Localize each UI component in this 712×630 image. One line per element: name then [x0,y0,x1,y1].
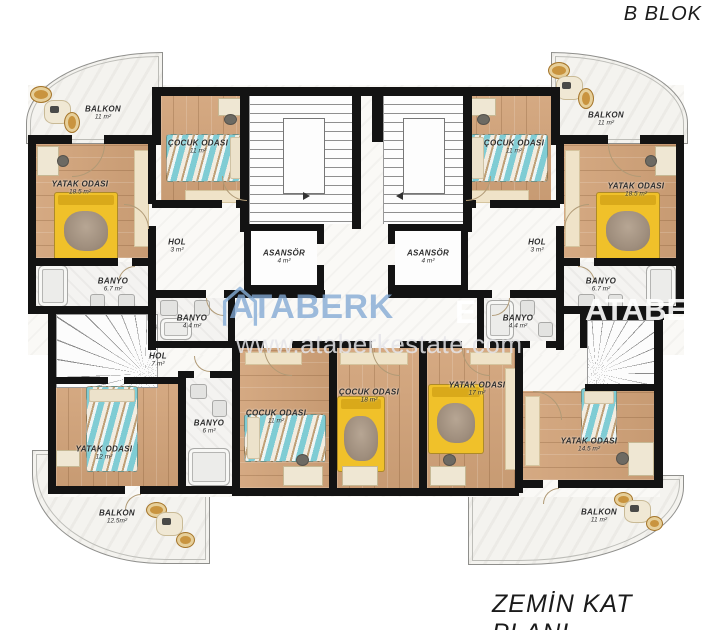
wall [232,348,240,493]
desk-chair [443,454,456,466]
wall [585,384,663,391]
balcony-table-item [162,518,171,525]
desk-chair [296,454,309,466]
staircase-bottom-right [587,320,656,386]
wall [464,200,476,208]
room-label-balkon-bl: BALKON12.5m² [99,509,135,526]
desk [430,466,466,486]
room-label-cocuk-bl: ÇOCUK ODASI11 m² [246,409,306,426]
wall [352,87,361,229]
balcony-chair [578,88,594,109]
balcony-chair [64,112,80,133]
watermark-fragment: E [455,294,476,331]
wall [232,488,519,496]
wall [244,224,251,292]
wall [372,87,383,142]
watermark-url: www.ataberkestate.com [236,329,523,360]
wall [124,377,178,384]
room-label-banyo-tr: BANYO6.7 m² [586,277,616,294]
wall [329,348,337,493]
wall [244,224,324,231]
wall [210,371,234,378]
room-label-balkon-br: BALKON11 m² [581,508,617,525]
room-label-hol-bl: HOL7 m² [149,352,167,369]
room-label-banyo-ml: BANYO4.4 m² [177,314,207,331]
wall [28,135,36,314]
room-label-banyo-mr: BANYO4.4 m² [503,314,533,331]
room-label-balkon-tl: BALKON11 m² [85,105,121,122]
room-label-yatak-bl: YATAK ODASI12 m² [76,445,133,462]
wall [48,377,108,384]
stair-landing-right [403,118,445,194]
desk [655,146,677,176]
desk-chair [616,452,629,465]
wall [654,318,663,488]
plan-caption: ZEMİN KAT PLANI [492,590,712,630]
room-label-hol-tl: HOL3 m² [168,238,186,255]
desk-chair [477,114,490,125]
desk [37,146,59,176]
wall [558,480,660,488]
sink [538,322,553,337]
bathtub [38,265,68,307]
wall [178,371,186,493]
wall [461,224,468,292]
wall [48,314,56,492]
wall [546,341,564,348]
balcony-table-item [50,106,59,113]
wall [178,371,194,378]
floor-plan-canvas: ATABERK E ATABERK www.ataberkestate.com … [0,0,712,630]
wardrobe [565,150,580,247]
wall [48,486,125,494]
wall [148,140,156,204]
wall [419,348,427,493]
wall [463,87,472,232]
bathtub [188,448,230,486]
watermark-brand-echo: ATABERK [585,292,712,328]
shower [160,300,178,316]
sink [190,384,207,399]
block-title: B BLOK [624,3,702,26]
desk [342,466,378,486]
desk [283,466,323,486]
wall [240,87,249,232]
wall [28,258,118,266]
wall [594,258,684,266]
wall [515,480,543,488]
room-label-cocuk-tl: ÇOCUK ODASI11 m² [168,139,228,156]
room-label-cocuk-bm: ÇOCUK ODASI18 m² [339,388,399,405]
room-label-balkon-tr: BALKON11 m² [588,111,624,128]
stair-landing-left [283,118,325,194]
wall [140,486,234,494]
stair-direction-arrow [396,192,403,200]
wall [152,200,222,208]
balcony-chair [646,516,663,531]
wall [28,306,156,314]
room-label-cocuk-tr: ÇOCUK ODASI11 m² [484,139,544,156]
room-label-hol-tr: HOL3 m² [528,238,546,255]
desk [628,442,654,476]
room-label-asansor-left: ASANSÖR4 m² [263,249,305,266]
stair-direction-arrow [303,192,310,200]
balcony-table-item [630,505,639,512]
watermark-brand: ATABERK [229,288,394,327]
wardrobe [134,150,149,247]
room-label-yatak-tr: YATAK ODASI18.5 m² [608,182,665,199]
wall [388,224,468,231]
wall [236,200,248,208]
desk-chair [645,155,657,167]
room-label-yatak-bm: YATAK ODASI17 m² [449,381,506,398]
bed-master-tl [54,192,118,262]
room-label-yatak-tl: YATAK ODASI18.5 m² [52,180,109,197]
desk-chair [224,114,237,125]
wall [676,135,684,314]
wall [317,224,324,244]
wall [148,290,206,298]
bed-bedroom-br [581,388,617,442]
room-label-banyo-tl: BANYO6.7 m² [98,277,128,294]
balcony-table-item [562,82,571,89]
bed-child-bm [337,396,385,472]
room-label-banyo-bl: BANYO6 m² [194,419,224,436]
wall [515,348,523,493]
toilet [212,400,227,417]
wall [490,200,560,208]
balcony-chair [176,532,195,548]
bed-master-tr [596,192,660,262]
desk-chair [57,155,69,167]
room-label-yatak-br: YATAK ODASI14.5 m² [561,437,618,454]
room-label-asansor-right: ASANSÖR4 m² [407,249,449,266]
wall [388,224,395,244]
wall [556,140,564,204]
